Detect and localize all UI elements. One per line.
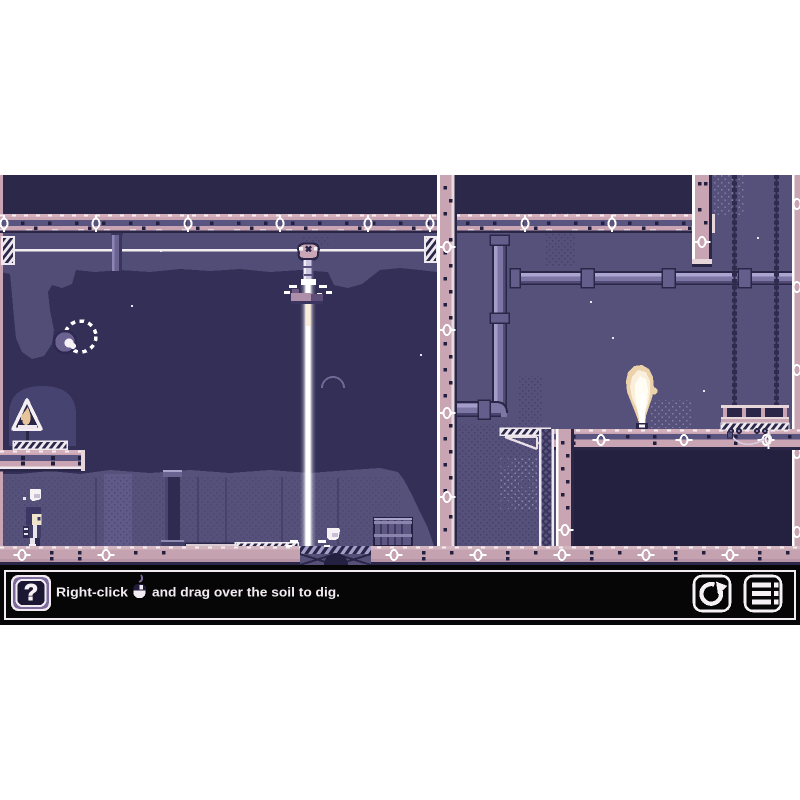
svg-text:and drag over the soil to dig.: and drag over the soil to dig. bbox=[152, 585, 340, 600]
svg-text:Right-click: Right-click bbox=[56, 585, 129, 600]
svg-text:?: ? bbox=[24, 579, 38, 605]
